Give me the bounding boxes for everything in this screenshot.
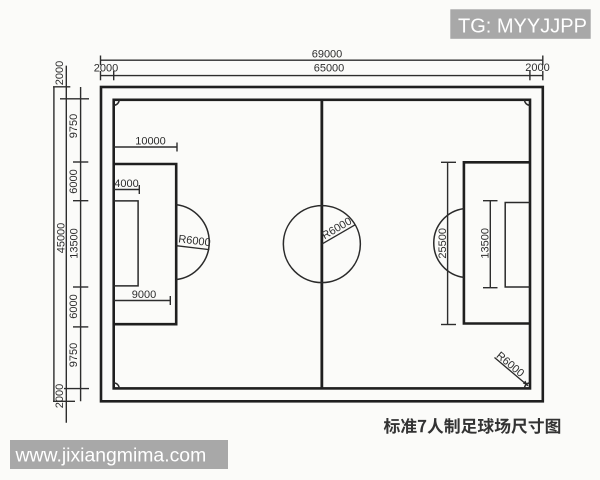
- svg-text:4000: 4000: [114, 178, 138, 190]
- svg-text:13500: 13500: [480, 228, 492, 259]
- svg-text:www.jixiangmima.com: www.jixiangmima.com: [15, 444, 207, 466]
- svg-text:25500: 25500: [437, 228, 449, 259]
- svg-text:69000: 69000: [312, 49, 343, 61]
- svg-text:2000: 2000: [94, 63, 118, 75]
- svg-text:2000: 2000: [525, 62, 549, 74]
- svg-text:2000: 2000: [54, 61, 66, 85]
- svg-text:9000: 9000: [132, 289, 156, 301]
- svg-text:9750: 9750: [68, 343, 80, 367]
- svg-text:45000: 45000: [56, 223, 68, 254]
- svg-text:6000: 6000: [68, 294, 80, 318]
- svg-text:65000: 65000: [314, 63, 345, 75]
- svg-text:TG: MYYJJPP: TG: MYYJJPP: [458, 16, 587, 38]
- svg-text:9750: 9750: [68, 114, 80, 138]
- svg-text:6000: 6000: [68, 169, 80, 193]
- svg-text:10000: 10000: [135, 136, 166, 148]
- svg-text:13500: 13500: [69, 228, 81, 259]
- svg-text:2000: 2000: [54, 384, 66, 408]
